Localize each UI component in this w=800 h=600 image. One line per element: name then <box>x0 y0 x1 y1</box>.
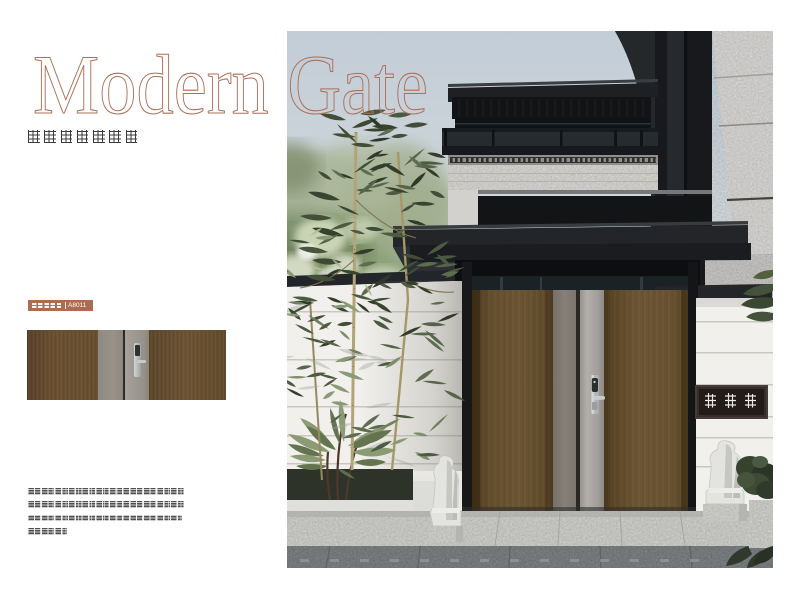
svg-text:Modern Gate: Modern Gate <box>33 38 428 132</box>
